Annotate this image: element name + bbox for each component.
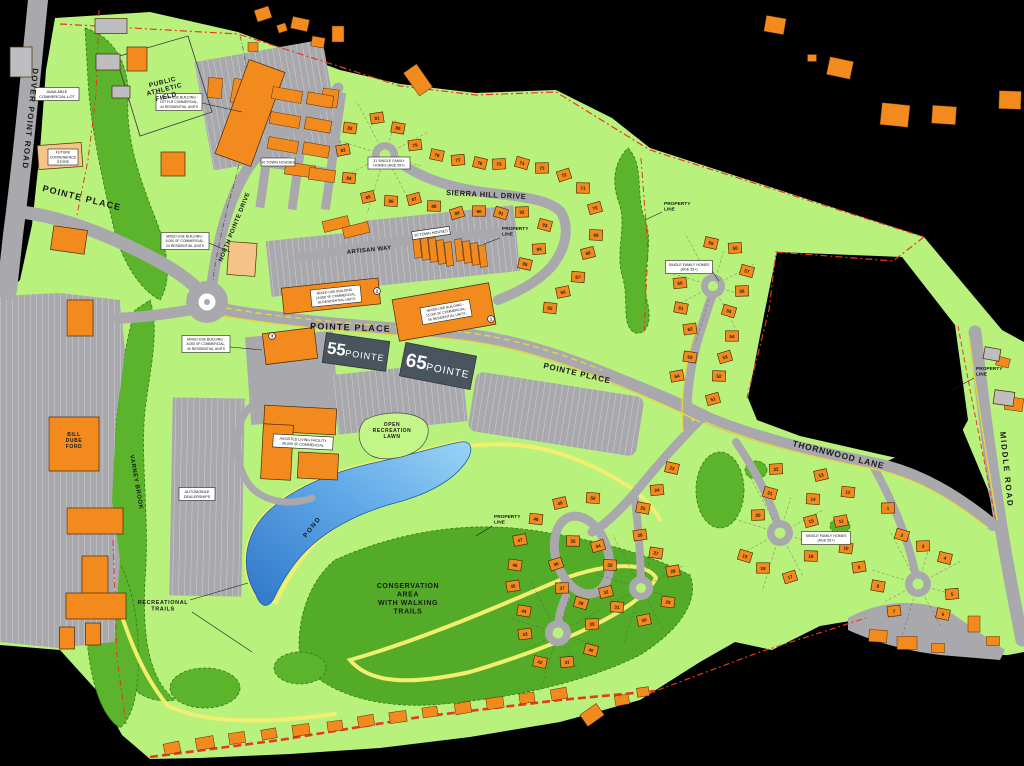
lot-number: 71 (580, 186, 586, 191)
lot-number: 20 (755, 513, 761, 518)
cul-de-sac-island (553, 628, 564, 639)
label-assisted-living: ASSISTED LIVING FACILITY38,000 SF COMMER… (273, 434, 334, 450)
building (983, 347, 1001, 362)
lot-marker: 82 (343, 122, 357, 134)
label-text: SINGLE FAMILY HOMES (806, 534, 847, 538)
offsite-building (327, 720, 343, 732)
lot-number: 73 (539, 166, 545, 171)
building (67, 300, 93, 336)
cul-de-sac-island (708, 281, 718, 291)
area-label-text: TRAILS (394, 609, 423, 616)
lot-marker: 44 (517, 605, 532, 617)
lot-marker: 3 (916, 540, 930, 551)
lot-number: 88 (431, 204, 437, 209)
lot-number: 14 (810, 497, 816, 502)
label-town-houses-10: 10 TOWN HOUSES (261, 158, 295, 166)
label-mixed-use-40: MIXED-USE BUILDING -8,000 SF COMMERCIAL,… (182, 336, 230, 353)
label-text: DEALERSHIPS (184, 495, 211, 499)
area-label-bill-dube-ford: BILLDUBEFORD (66, 432, 83, 450)
building (67, 508, 123, 534)
lot-marker: 14 (806, 493, 820, 504)
lot-number: 75 (496, 162, 502, 167)
lot-marker: 46 (508, 559, 522, 571)
area-label-text: LAWN (383, 434, 400, 440)
offsite-building (292, 723, 310, 736)
lot-marker: 35 (566, 536, 579, 547)
lot-marker: 39 (585, 618, 599, 629)
lot-marker: 37 (555, 583, 568, 594)
offsite-building (987, 637, 1000, 646)
lot-number: 31 (614, 605, 620, 610)
offsite-building (332, 26, 344, 42)
lot-marker: 92 (515, 207, 528, 218)
label-text: 40 RESIDENTIAL UNITS (187, 347, 226, 351)
lot-marker: 8 (871, 580, 886, 592)
building (127, 47, 147, 71)
lot-marker: 12 (841, 486, 855, 498)
building (66, 593, 126, 619)
offsite-building (808, 55, 817, 62)
offsite-building (311, 36, 326, 48)
property-line-text: LINE (664, 206, 676, 212)
building-number: 2 (374, 288, 381, 295)
lot-marker: 47 (513, 534, 528, 547)
area-label-text: AREA (397, 592, 419, 599)
lot-marker: 73 (535, 163, 548, 174)
building (261, 424, 294, 480)
lot-number: 86 (388, 199, 394, 204)
lot-marker: 6 (936, 608, 951, 621)
lot-marker: 42 (533, 656, 548, 669)
label-text: AUTOMOBILE (185, 490, 210, 494)
lot-marker: 56 (735, 286, 748, 297)
lot-number: 50 (590, 496, 596, 501)
offsite-building (519, 692, 535, 704)
lot-number: 60 (677, 280, 683, 286)
property-line-text: PROPERTY (502, 226, 529, 232)
label-text: (AGE 55+) (680, 268, 697, 272)
lot-marker: 78 (430, 149, 445, 162)
offsite-building (422, 706, 438, 718)
label-text: 31 SINGLE FAMILY (373, 159, 405, 163)
label-mixed-use-24: MIXED-USE BUILDING -5,000 SF COMMERCIAL,… (161, 233, 209, 250)
property-line-text: PROPERTY (976, 366, 1003, 372)
lot-marker: 61 (674, 302, 689, 315)
lot-marker: 20 (751, 510, 764, 521)
building (161, 152, 185, 176)
lot-marker: 80 (391, 122, 406, 134)
building (60, 627, 75, 649)
label-text: 24 RESIDENTIAL UNITS (166, 244, 205, 248)
lot-marker: 16 (804, 551, 817, 562)
label-text: COMMERCIAL LOT (39, 94, 75, 99)
label-text: FUTURE (56, 150, 71, 154)
lot-number: 90 (476, 209, 482, 214)
offsite-building (228, 731, 245, 744)
lot-number: 92 (519, 210, 525, 215)
building-number: 1 (488, 316, 495, 323)
lot-marker: 50 (586, 492, 600, 503)
lot-marker: 58 (728, 242, 742, 253)
lot-marker: 48 (529, 513, 543, 525)
lot-marker: 90 (473, 206, 486, 216)
lot-marker: 63 (683, 351, 697, 363)
site-plan-map: 1234567891011121314151617181920212223242… (0, 0, 1024, 766)
lot-number: 24 (654, 487, 660, 493)
label-text: SINGLE FAMILY HOMES (669, 263, 710, 267)
lot-marker: 52 (712, 371, 725, 382)
label-future-convenience-store: FUTURECONVENIENCESTORE (48, 149, 78, 165)
offsite-building (968, 616, 980, 632)
lot-marker: 22 (769, 463, 783, 474)
lot-number: 35 (570, 539, 576, 544)
label-text: STORE (57, 160, 70, 164)
offsite-building (389, 710, 407, 723)
label-text: CONVENIENCE (50, 155, 77, 159)
offsite-building (931, 105, 956, 125)
label-sfh-31: 31 SINGLE FAMILYHOMES (AGE 55+) (368, 157, 410, 169)
roundabout (186, 281, 228, 323)
label-text: MIXED-USE BUILDING - (187, 338, 225, 342)
property-line-text: LINE (494, 519, 506, 525)
lot-marker: 43 (518, 628, 532, 640)
lot-marker: 7 (887, 605, 901, 617)
lot-marker: 94 (532, 243, 546, 254)
lot-number: 56 (739, 289, 745, 294)
lot-marker: 28 (666, 565, 681, 577)
lot-marker: 71 (576, 183, 589, 194)
lot-number: 84 (346, 176, 352, 182)
building (993, 390, 1015, 407)
lot-marker: 1 (881, 503, 894, 514)
property-line-text: PROPERTY (494, 514, 521, 520)
lot-number: 52 (716, 374, 722, 379)
lot-number: 37 (559, 586, 565, 591)
lot-marker: 86 (384, 195, 398, 206)
lot-marker: 29 (661, 596, 675, 608)
property-line-text: LINE (976, 371, 988, 377)
lot-marker: 88 (427, 201, 440, 212)
building (227, 242, 257, 277)
lot-number: 69 (593, 233, 599, 238)
lot-number: 94 (536, 247, 542, 252)
lot-marker: 25 (636, 502, 651, 515)
offsite-building (486, 696, 504, 709)
cul-de-sac-island (775, 528, 786, 539)
offsite-building (636, 687, 649, 698)
area-label-text: FORD (66, 444, 83, 450)
lot-marker: 65 (543, 302, 557, 314)
area-label-text: CONSERVATION (377, 583, 439, 590)
lot-marker: 41 (560, 656, 574, 667)
lot-marker: 18 (757, 563, 770, 573)
building (86, 623, 101, 645)
label-text: 10 TOWN HOUSES (261, 160, 295, 164)
lot-number: 18 (760, 566, 766, 571)
label-text: 5,000 SF COMMERCIAL, (166, 239, 205, 243)
lot-number: 16 (808, 554, 814, 559)
lot-number: 22 (773, 467, 779, 472)
label-text: 44 RESIDENTIAL UNITS (160, 105, 199, 109)
label-automobile-dealerships: AUTOMOBILEDEALERSHIPS (179, 488, 215, 501)
lot-marker: 5 (945, 588, 959, 599)
lot-number: 39 (589, 622, 595, 627)
lot-marker: 27 (649, 547, 663, 559)
offsite-building (869, 630, 888, 643)
lot-marker: 79 (408, 139, 422, 151)
building (50, 226, 87, 254)
lot-marker: 75 (492, 158, 506, 169)
building-number: 3 (269, 333, 276, 340)
cul-de-sac-island (636, 583, 646, 593)
lot-number: 67 (575, 275, 581, 280)
building (297, 452, 338, 480)
lot-number: 54 (729, 334, 735, 339)
building (96, 54, 120, 70)
lot-number: 48 (533, 517, 539, 523)
label-text: MIXED-USE BUILDING - (166, 235, 204, 239)
lot-number: 33 (607, 563, 613, 568)
label-text: 8,000 SF COMMERCIAL, (187, 342, 226, 346)
lot-marker: 81 (370, 112, 384, 124)
lot-marker: 83 (336, 144, 351, 157)
offsite-building (764, 15, 786, 34)
label-sfh-ne: SINGLE FAMILY HOMES(AGE 55+) (666, 261, 713, 274)
lot-marker: 64 (670, 370, 685, 382)
label-sfh-thornwood: SINGLE FAMILY HOMES(AGE 55+) (802, 532, 851, 545)
lot-marker: 62 (683, 323, 697, 335)
offsite-building (897, 637, 917, 650)
lot-marker: 26 (633, 529, 647, 541)
offsite-building (999, 91, 1022, 110)
area-label-text: RECREATIONAL (138, 600, 189, 606)
building (112, 86, 130, 98)
lot-marker: 54 (726, 331, 739, 341)
label-text: (AGE 55+) (817, 539, 834, 543)
building (10, 47, 32, 77)
lot-marker: 11 (834, 515, 849, 528)
lot-marker: 66 (556, 286, 571, 299)
lot-number: 41 (564, 660, 570, 665)
offsite-building (614, 694, 630, 706)
lot-marker: 67 (571, 271, 585, 282)
map-canvas: 1234567891011121314151617181920212223242… (0, 0, 1024, 766)
offsite-building (932, 644, 945, 653)
lot-marker: 9 (852, 561, 866, 573)
property-line-text: PROPERTY (664, 201, 691, 207)
offsite-building (880, 103, 910, 128)
cul-de-sac-island (913, 579, 924, 590)
offsite-building (207, 78, 222, 99)
lot-number: 77 (455, 158, 461, 163)
building (95, 19, 127, 34)
label-text: HOMES (AGE 55+) (373, 164, 404, 168)
lot-marker: 69 (589, 229, 603, 240)
lot-marker: 33 (603, 559, 617, 570)
lot-marker: 84 (342, 172, 356, 184)
area-label-text: TRAILS (151, 607, 174, 613)
lot-marker: 77 (451, 154, 465, 165)
lot-number: 12 (845, 490, 851, 496)
property-line-text: LINE (502, 231, 514, 237)
lot-marker: 60 (673, 277, 687, 289)
offsite-building (248, 43, 258, 52)
lot-number: 58 (732, 246, 738, 251)
label-available-commercial-lot: AVAILABLECOMMERCIAL LOT (35, 88, 79, 101)
lot-marker: 31 (610, 601, 624, 612)
area-label-text: WITH WALKING (378, 600, 438, 607)
lot-marker: 24 (650, 484, 664, 496)
lot-marker: 30 (637, 614, 652, 627)
lot-marker: 45 (506, 580, 520, 592)
